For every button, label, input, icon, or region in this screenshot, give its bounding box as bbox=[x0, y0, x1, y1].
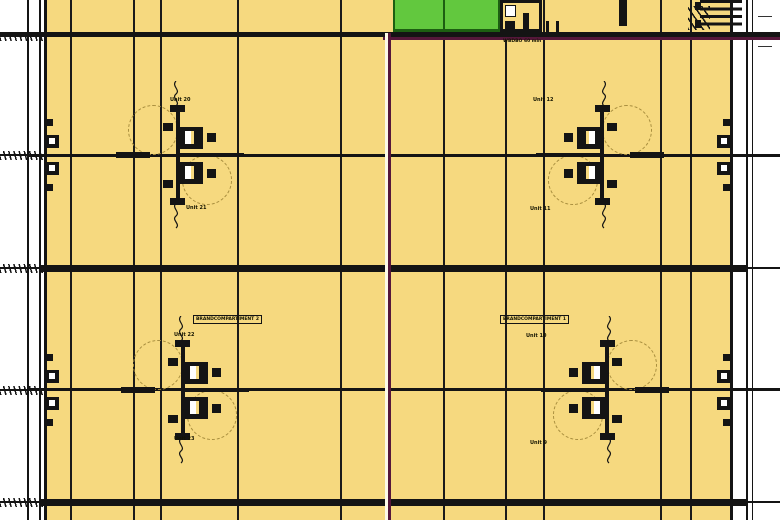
left-wall-line bbox=[27, 0, 29, 520]
door-post bbox=[207, 169, 216, 178]
axis-stub bbox=[630, 152, 664, 158]
margin-annotation bbox=[758, 46, 772, 47]
wall-block-window bbox=[721, 165, 727, 171]
axis-stub bbox=[185, 388, 249, 392]
break-line-squiggle bbox=[603, 438, 615, 464]
door-post bbox=[569, 368, 578, 377]
fire-compartment-label: BRANDCOMPARTIMENT 2 bbox=[193, 315, 262, 324]
column-door-detail bbox=[565, 340, 645, 440]
door-leaf-window bbox=[190, 366, 199, 379]
door-leaf-window bbox=[185, 166, 194, 179]
wall-cap bbox=[44, 419, 53, 426]
wall-column bbox=[44, 119, 64, 191]
column-axis bbox=[605, 342, 609, 438]
break-line-squiggle bbox=[170, 81, 182, 107]
door-leaf-window bbox=[185, 131, 194, 144]
wall-cap bbox=[44, 184, 53, 191]
grid-line-vertical bbox=[443, 0, 445, 520]
grid-line-vertical bbox=[70, 0, 72, 520]
stair-block bbox=[695, 20, 701, 28]
break-line-squiggle bbox=[170, 203, 182, 229]
door-jamb bbox=[546, 21, 549, 33]
column-flange bbox=[612, 415, 622, 423]
floor-plan-canvas: WBDBO 60 min bbox=[0, 0, 780, 520]
wall-block-window bbox=[721, 138, 727, 144]
column-door-detail bbox=[560, 105, 640, 205]
column-axis bbox=[600, 107, 604, 203]
wall-column bbox=[712, 354, 732, 426]
wall-block-window bbox=[49, 373, 55, 379]
column-flange bbox=[612, 358, 622, 366]
wall-cap bbox=[44, 119, 53, 126]
axis-stub bbox=[635, 387, 669, 393]
break-line-squiggle bbox=[603, 316, 615, 342]
stair-block bbox=[695, 2, 701, 10]
unit-label: Unit 9 bbox=[530, 440, 547, 446]
wall-cap bbox=[723, 419, 732, 426]
structural-pier bbox=[619, 0, 627, 26]
entrance-core bbox=[500, 0, 542, 32]
left-wall-line bbox=[39, 0, 41, 520]
dimension-line bbox=[0, 389, 46, 391]
unit-label: Unit 21 bbox=[186, 205, 206, 211]
wall-cap bbox=[44, 354, 53, 361]
dimension-line bbox=[0, 35, 46, 37]
grid-line-vertical bbox=[505, 0, 507, 520]
axis-stub bbox=[536, 153, 600, 157]
axis-stub bbox=[116, 152, 150, 158]
right-wall-line bbox=[730, 0, 733, 520]
wall-cap bbox=[723, 119, 732, 126]
grid-line-vertical bbox=[660, 0, 662, 520]
door-post bbox=[207, 133, 216, 142]
grid-line-vertical bbox=[133, 0, 135, 520]
fire-wall-label: WBDBO 60 min bbox=[503, 39, 541, 44]
unit-label: Unit 23 bbox=[174, 436, 194, 442]
column-flange bbox=[163, 123, 173, 131]
column-flange bbox=[168, 358, 178, 366]
unit-label: Unit 11 bbox=[530, 206, 550, 212]
dimension-line bbox=[0, 267, 46, 269]
axis-stub bbox=[541, 388, 605, 392]
compartment-wall-middle bbox=[40, 265, 747, 272]
axis-stub bbox=[180, 153, 244, 157]
core-block bbox=[505, 21, 515, 29]
break-line-squiggle bbox=[598, 203, 610, 229]
margin-annotation bbox=[758, 16, 772, 17]
door-post bbox=[564, 169, 573, 178]
dimension-line bbox=[0, 154, 46, 156]
column-flange bbox=[168, 415, 178, 423]
wall-column bbox=[712, 119, 732, 191]
column-door-detail bbox=[140, 105, 220, 205]
core-window bbox=[505, 5, 516, 17]
wall-block-window bbox=[49, 138, 55, 144]
door-leaf-window bbox=[591, 401, 600, 414]
compartment-boundary-top bbox=[383, 37, 780, 40]
compartment-wall-bottom bbox=[40, 499, 747, 506]
door-leaf-window bbox=[190, 401, 199, 414]
wall-block-window bbox=[49, 400, 55, 406]
wall-cap bbox=[723, 184, 732, 191]
door-post bbox=[212, 404, 221, 413]
dimension-line bbox=[0, 501, 46, 503]
break-line-squiggle bbox=[175, 316, 187, 342]
door-post bbox=[564, 133, 573, 142]
unit-label: Unit 10 bbox=[526, 333, 546, 339]
wall-extension bbox=[747, 501, 780, 503]
break-line-squiggle bbox=[598, 81, 610, 107]
door-post bbox=[569, 404, 578, 413]
wall-extension bbox=[747, 267, 780, 269]
grid-line-vertical bbox=[160, 0, 162, 520]
wall-block-window bbox=[49, 165, 55, 171]
door-leaf-window bbox=[586, 166, 595, 179]
wall-column bbox=[44, 354, 64, 426]
door-jamb bbox=[556, 21, 559, 33]
door-post bbox=[212, 368, 221, 377]
left-wall-line bbox=[44, 0, 47, 520]
column-door-detail bbox=[145, 340, 225, 440]
stair-flight bbox=[700, 0, 742, 30]
unit-label: Unit 22 bbox=[174, 332, 194, 338]
grid-line-vertical bbox=[237, 0, 239, 520]
right-wall-line bbox=[752, 0, 754, 520]
unit-label: Unit 12 bbox=[533, 97, 553, 103]
core-block bbox=[523, 13, 529, 29]
wall-cap bbox=[723, 354, 732, 361]
wall-block-window bbox=[721, 373, 727, 379]
column-flange bbox=[163, 180, 173, 188]
green-room-divider bbox=[443, 0, 445, 29]
compartment-boundary-vertical bbox=[388, 33, 391, 520]
grid-line-vertical bbox=[340, 0, 342, 520]
column-flange bbox=[607, 123, 617, 131]
unit-label: Unit 20 bbox=[170, 97, 190, 103]
fire-compartment-label: BRANDCOMPARTIMENT 1 bbox=[500, 315, 569, 324]
column-flange bbox=[607, 180, 617, 188]
door-leaf-window bbox=[591, 366, 600, 379]
axis-stub bbox=[121, 387, 155, 393]
grid-line-vertical bbox=[690, 0, 692, 520]
green-room bbox=[393, 0, 500, 32]
wall-block-window bbox=[721, 400, 727, 406]
right-wall-line bbox=[746, 0, 748, 520]
door-leaf-window bbox=[586, 131, 595, 144]
